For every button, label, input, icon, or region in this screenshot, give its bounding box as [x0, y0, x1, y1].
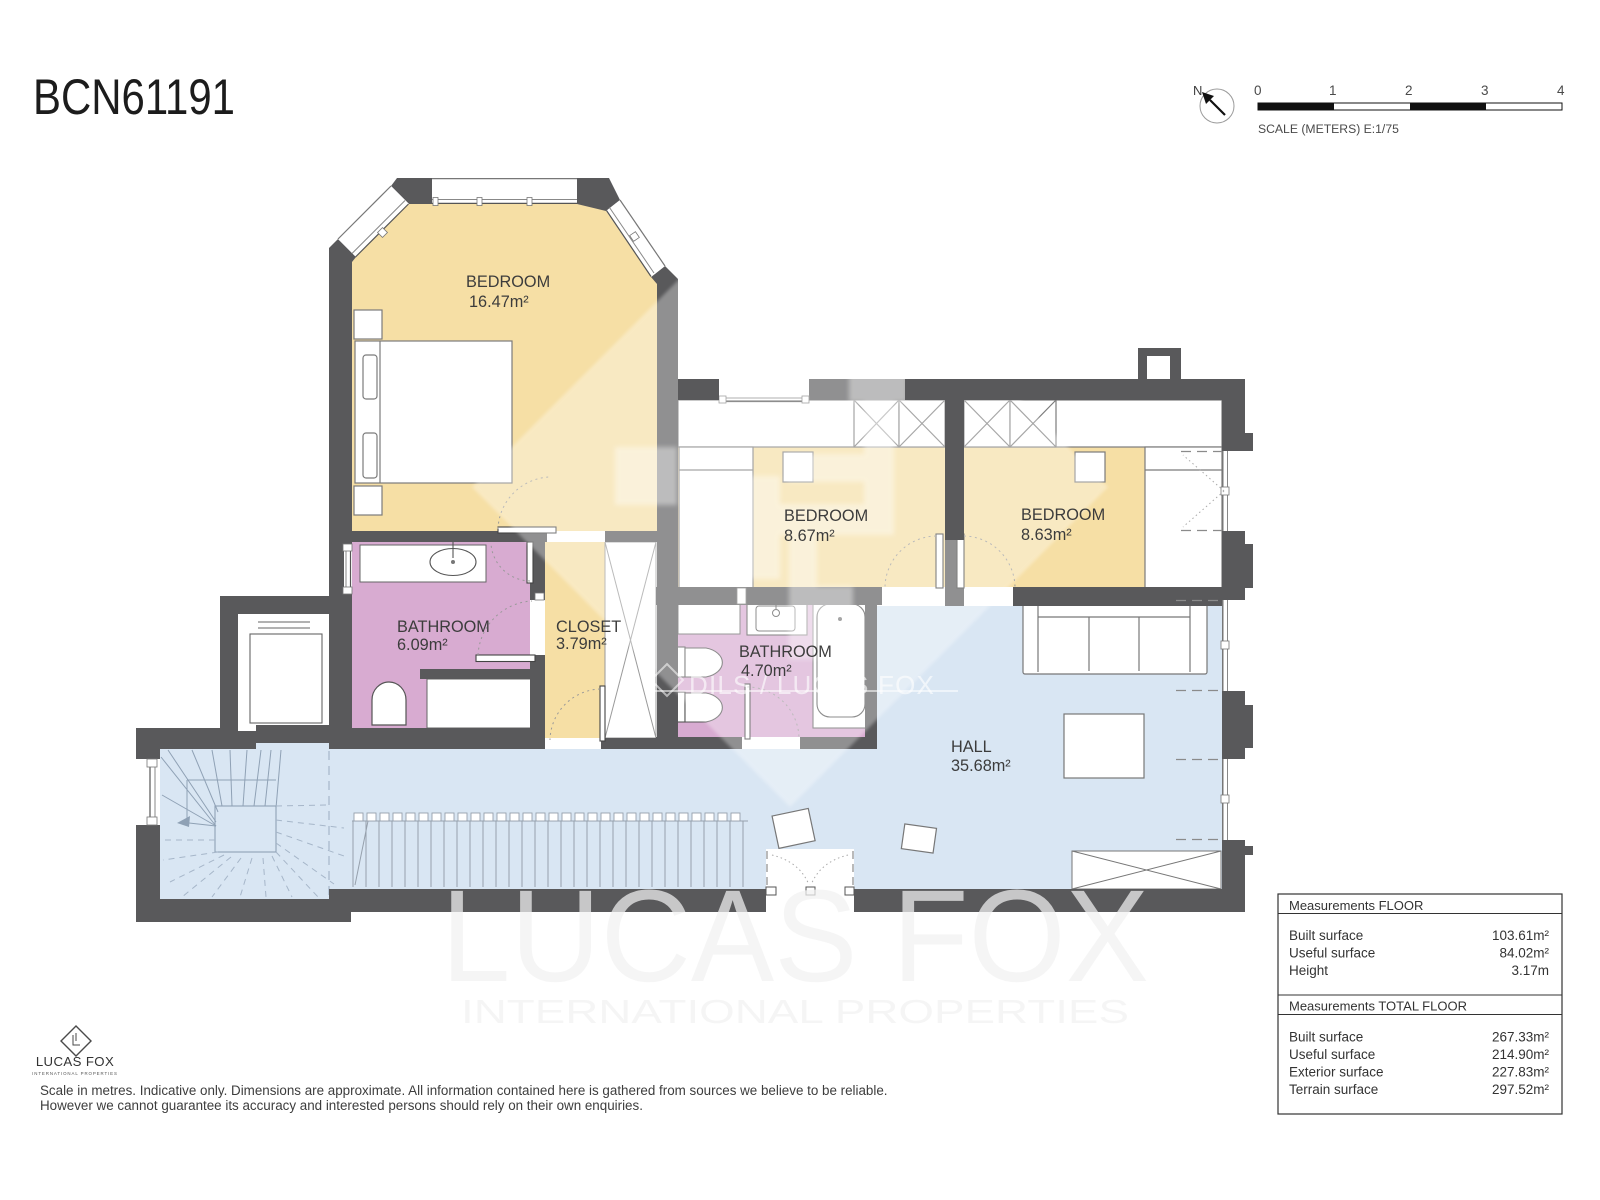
svg-text:INTERNATIONAL PROPERTIES: INTERNATIONAL PROPERTIES [32, 1071, 118, 1076]
svg-text:3: 3 [1481, 83, 1489, 98]
svg-text:Useful surface: Useful surface [1289, 1047, 1375, 1062]
svg-text:Built surface: Built surface [1289, 928, 1363, 943]
svg-text:Height: Height [1289, 963, 1328, 978]
svg-text:N: N [1193, 83, 1202, 98]
svg-text:Exterior surface: Exterior surface [1289, 1065, 1384, 1080]
svg-text:However we cannot guarantee it: However we cannot guarantee its accuracy… [40, 1098, 643, 1113]
svg-text:BEDROOM: BEDROOM [1021, 506, 1105, 524]
svg-text:HALL: HALL [951, 738, 992, 756]
svg-text:INTERNATIONAL PROPERTIES: INTERNATIONAL PROPERTIES [461, 993, 1129, 1030]
svg-text:DILS / LUCAS FOX: DILS / LUCAS FOX [689, 670, 935, 700]
svg-text:35.68m²: 35.68m² [951, 757, 1011, 775]
svg-text:267.33m²: 267.33m² [1492, 1030, 1550, 1045]
svg-text:84.02m²: 84.02m² [1499, 946, 1549, 961]
svg-text:4.70m²: 4.70m² [741, 662, 792, 680]
svg-text:6.09m²: 6.09m² [397, 636, 448, 654]
svg-text:1: 1 [1329, 83, 1337, 98]
svg-text:103.61m²: 103.61m² [1492, 928, 1550, 943]
svg-text:CLOSET: CLOSET [556, 618, 621, 636]
svg-text:Terrain surface: Terrain surface [1289, 1082, 1378, 1097]
svg-text:BATHROOM: BATHROOM [739, 643, 832, 661]
svg-text:3.79m²: 3.79m² [556, 635, 607, 653]
svg-text:Built surface: Built surface [1289, 1030, 1363, 1045]
svg-text:Measurements TOTAL FLOOR: Measurements TOTAL FLOOR [1289, 999, 1467, 1014]
svg-text:4: 4 [1557, 83, 1565, 98]
svg-text:297.52m²: 297.52m² [1492, 1082, 1550, 1097]
svg-text:2: 2 [1405, 83, 1413, 98]
svg-text:3.17m: 3.17m [1511, 963, 1549, 978]
svg-text:LUCAS FOX: LUCAS FOX [36, 1054, 114, 1069]
svg-text:Useful surface: Useful surface [1289, 946, 1375, 961]
svg-text:BEDROOM: BEDROOM [784, 507, 868, 525]
svg-text:Scale in metres. Indicative on: Scale in metres. Indicative only. Dimens… [40, 1083, 888, 1098]
svg-text:BATHROOM: BATHROOM [397, 618, 490, 636]
svg-text:227.83m²: 227.83m² [1492, 1065, 1550, 1080]
svg-text:LUCAS FOX: LUCAS FOX [441, 862, 1149, 1009]
svg-text:SCALE (METERS) E:1/75: SCALE (METERS) E:1/75 [1258, 122, 1399, 136]
svg-text:16.47m²: 16.47m² [469, 293, 529, 311]
svg-text:BEDROOM: BEDROOM [466, 273, 550, 291]
svg-text:BCN61191: BCN61191 [33, 69, 235, 125]
svg-text:214.90m²: 214.90m² [1492, 1047, 1550, 1062]
svg-text:8.63m²: 8.63m² [1021, 526, 1072, 544]
svg-text:Measurements FLOOR: Measurements FLOOR [1289, 898, 1423, 913]
svg-text:8.67m²: 8.67m² [784, 527, 835, 545]
svg-text:0: 0 [1254, 83, 1262, 98]
